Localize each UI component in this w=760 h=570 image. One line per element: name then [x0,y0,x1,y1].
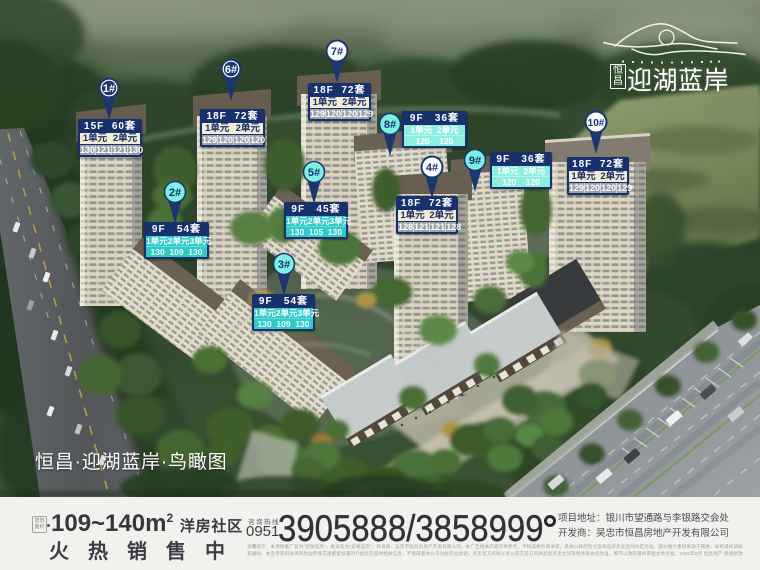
svg-text:9#: 9# [469,155,481,167]
svg-text:1#: 1# [103,83,115,95]
svg-text:5#: 5# [308,167,320,179]
svg-text:6#: 6# [225,64,237,76]
svg-text:3#: 3# [278,259,290,271]
svg-text:10#: 10# [588,118,605,129]
svg-text:4#: 4# [426,162,438,174]
svg-text:8#: 8# [384,119,396,131]
svg-text:7#: 7# [331,46,343,58]
svg-text:2#: 2# [169,187,181,199]
